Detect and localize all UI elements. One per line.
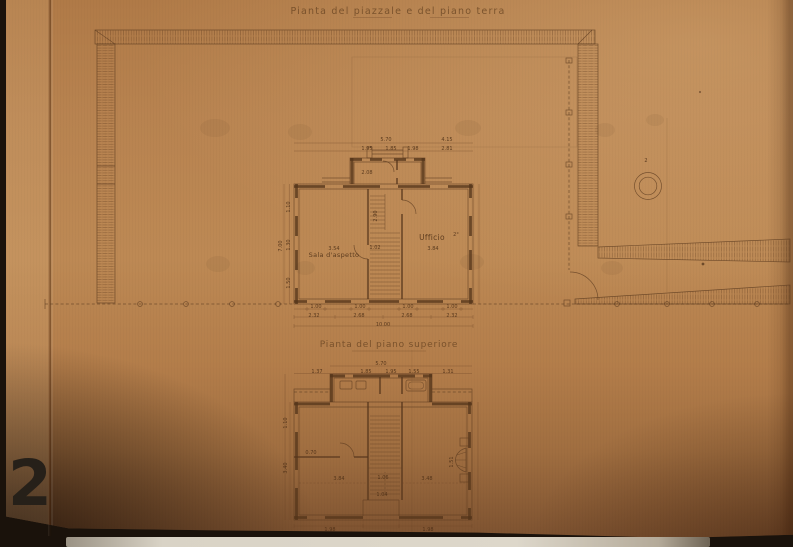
upper-floor-plan bbox=[285, 366, 478, 528]
dimension-text: 1.51 bbox=[449, 456, 455, 467]
room-label-ufficio: Ufficio bbox=[419, 233, 445, 242]
entrance-vestibule bbox=[322, 147, 452, 184]
fold-creases bbox=[49, 0, 667, 536]
dimension-text: 1.98 bbox=[422, 527, 433, 533]
title-upper-floor: Pianta del piano superiore bbox=[320, 340, 458, 350]
dimension-text: 7.00 bbox=[278, 240, 284, 251]
dimension-text: 2.68 bbox=[401, 313, 412, 319]
dimension-text: 1.98 bbox=[324, 527, 335, 533]
fence-line bbox=[45, 58, 790, 309]
dimension-text: 2.32 bbox=[308, 313, 319, 319]
table-surface-strip bbox=[66, 537, 710, 547]
dimension-text: 0.70 bbox=[305, 450, 316, 456]
gate-swing-arc bbox=[570, 272, 598, 300]
dimension-text: 1.50 bbox=[286, 277, 292, 288]
dimension-text: 2.68 bbox=[353, 313, 364, 319]
courtyard-wall-top bbox=[95, 30, 595, 44]
dimension-text: 1.00 bbox=[354, 304, 365, 310]
room-label-sala-aspetto: Sala d'aspetto bbox=[309, 251, 360, 259]
plan-drawing-svg: Pianta del piazzale e del piano terra Pi… bbox=[0, 0, 793, 547]
courtyard-enclosure-walls bbox=[95, 30, 790, 304]
dimension-text: 2° bbox=[453, 232, 459, 238]
dimension-text: 3.48 bbox=[421, 476, 432, 482]
courtyard-wall-lower-right bbox=[575, 285, 790, 304]
dimension-text: 3.84 bbox=[427, 246, 438, 252]
dimension-text: 3.54 bbox=[328, 246, 339, 252]
dimension-text: 2.32 bbox=[446, 313, 457, 319]
dimension-text: 10.00 bbox=[376, 322, 390, 328]
sheet-number: 2 bbox=[8, 452, 52, 515]
title-ground-floor: Pianta del piazzale e del piano terra bbox=[290, 6, 505, 17]
upper-floor-dimension-lines bbox=[285, 366, 478, 528]
dimension-text: 1.10 bbox=[283, 417, 289, 428]
well-icon bbox=[635, 173, 662, 200]
dimension-text: 3.40 bbox=[283, 462, 289, 473]
dimension-text: 1.95 bbox=[385, 369, 396, 375]
dimension-text: 1.31 bbox=[442, 369, 453, 375]
dimension-text: 2.08 bbox=[361, 170, 372, 176]
bathtub-outline bbox=[406, 380, 426, 391]
ground-floor-plan bbox=[284, 143, 479, 328]
dimension-text: 1.85 bbox=[360, 369, 371, 375]
dimension-text: 3.84 bbox=[333, 476, 344, 482]
dimension-text: 1.30 bbox=[286, 239, 292, 250]
dimension-text: 2.81 bbox=[441, 146, 452, 152]
dimension-text: 1.55 bbox=[408, 369, 419, 375]
dimension-text: 1.02 bbox=[369, 245, 380, 251]
dimension-text: 2.90 bbox=[373, 210, 379, 221]
courtyard-wall-right bbox=[578, 44, 598, 246]
courtyard-wall-left bbox=[97, 44, 115, 303]
dimension-text: 5.70 bbox=[375, 361, 386, 367]
dimension-text: 1.95 bbox=[361, 146, 372, 152]
dimension-text: 5.70 bbox=[380, 137, 391, 143]
dimension-text: 4.15 bbox=[441, 137, 452, 143]
dimension-text: 1.00 bbox=[310, 304, 321, 310]
dimension-text: 1.04 bbox=[376, 492, 387, 498]
dimension-text: 1.85 bbox=[385, 146, 396, 152]
courtyard-wall-upper-right bbox=[598, 239, 790, 262]
gate-post bbox=[564, 300, 570, 306]
dimension-text: 1.10 bbox=[286, 201, 292, 212]
dimension-text: 1.37 bbox=[311, 369, 322, 375]
dimension-text: 1.00 bbox=[446, 304, 457, 310]
dimension-text: 1.06 bbox=[377, 475, 388, 481]
staircase-ground-floor bbox=[354, 189, 416, 299]
dimension-text: 1.00 bbox=[402, 304, 413, 310]
dimension-text: 2 bbox=[644, 158, 647, 164]
photo-of-architectural-drawing: Pianta del piazzale e del piano terra Pi… bbox=[0, 0, 793, 547]
dimension-text: 1.98 bbox=[407, 146, 418, 152]
upper-floor-top-wing bbox=[294, 374, 472, 402]
staircase-upper-floor bbox=[363, 402, 402, 528]
